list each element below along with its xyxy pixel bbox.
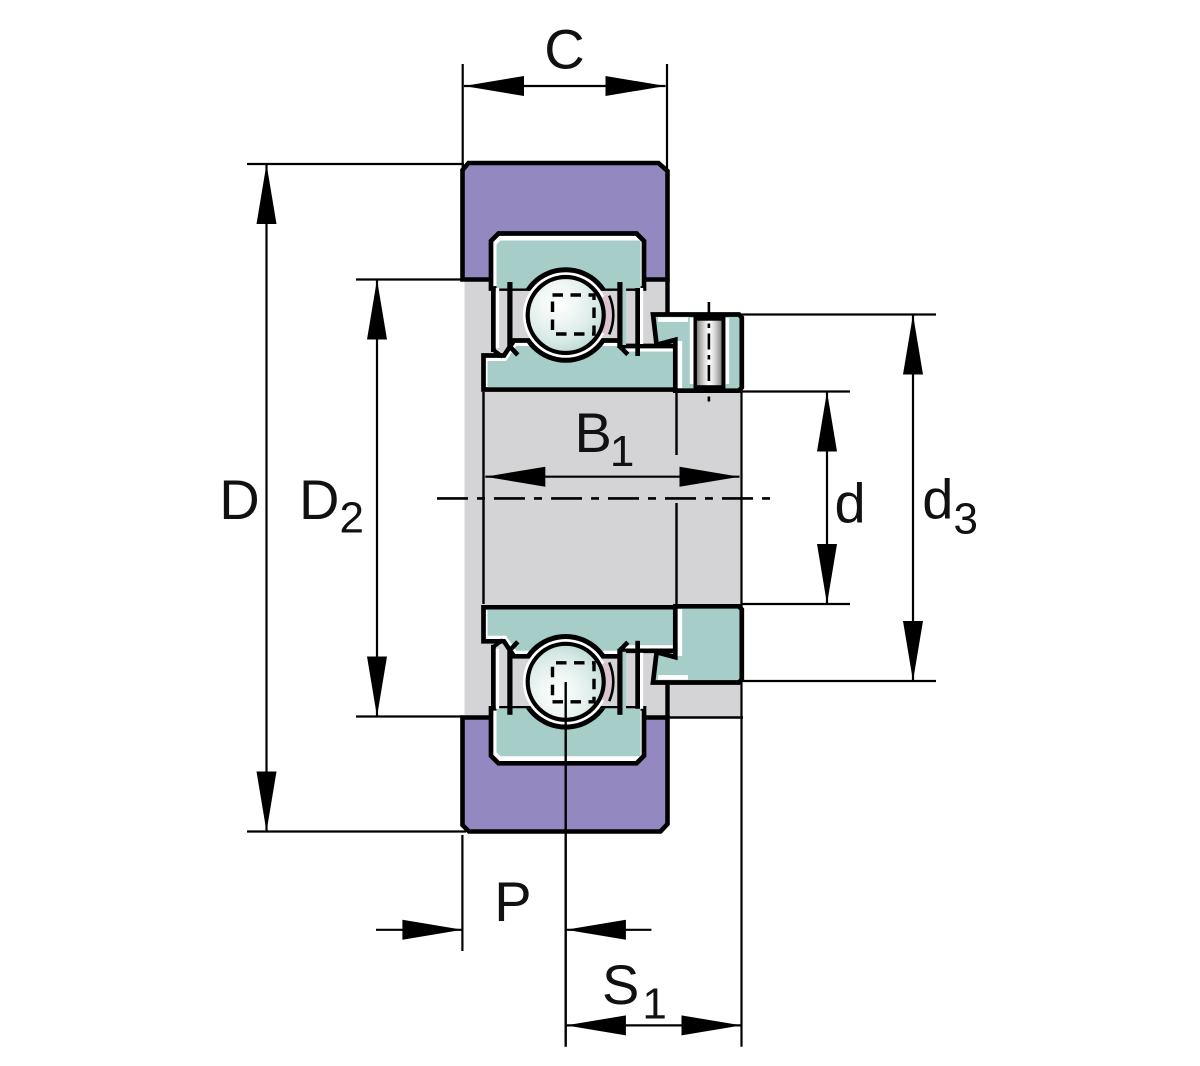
svg-text:P: P — [494, 870, 531, 933]
svg-text:d: d — [835, 472, 866, 535]
svg-text:C: C — [544, 18, 584, 81]
svg-text:D: D — [219, 468, 259, 531]
